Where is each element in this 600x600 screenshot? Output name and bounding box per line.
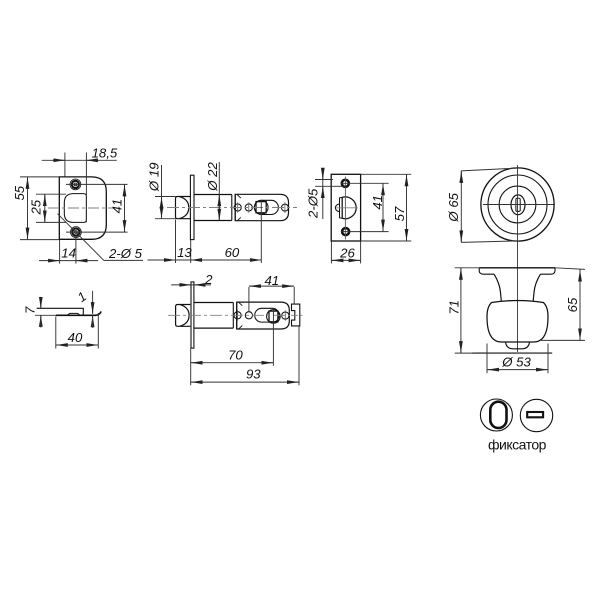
svg-text:57: 57 — [392, 206, 407, 221]
svg-text:Ø 65: Ø 65 — [446, 192, 461, 222]
svg-text:70: 70 — [228, 347, 243, 362]
svg-text:Ø 53: Ø 53 — [501, 354, 531, 369]
svg-text:65: 65 — [565, 297, 580, 312]
svg-text:40: 40 — [68, 330, 83, 345]
svg-text:93: 93 — [246, 367, 261, 382]
svg-text:18,5: 18,5 — [92, 146, 118, 161]
svg-text:2-Ø5: 2-Ø5 — [305, 188, 320, 219]
svg-text:Ø 19: Ø 19 — [146, 162, 161, 192]
svg-text:2: 2 — [204, 272, 213, 287]
svg-text:25: 25 — [29, 199, 44, 215]
svg-text:41: 41 — [264, 273, 279, 288]
svg-text:41: 41 — [110, 199, 125, 214]
svg-text:71: 71 — [447, 300, 462, 315]
svg-text:Ø 22: Ø 22 — [205, 162, 220, 192]
svg-text:фиксатор: фиксатор — [488, 437, 547, 453]
svg-text:26: 26 — [339, 245, 355, 260]
svg-text:7: 7 — [23, 306, 38, 314]
svg-text:2-Ø 5: 2-Ø 5 — [108, 246, 143, 261]
svg-text:14: 14 — [61, 246, 76, 261]
svg-text:55: 55 — [12, 185, 27, 200]
svg-text:60: 60 — [225, 245, 240, 260]
svg-text:41: 41 — [370, 195, 385, 210]
svg-text:13: 13 — [177, 245, 192, 260]
